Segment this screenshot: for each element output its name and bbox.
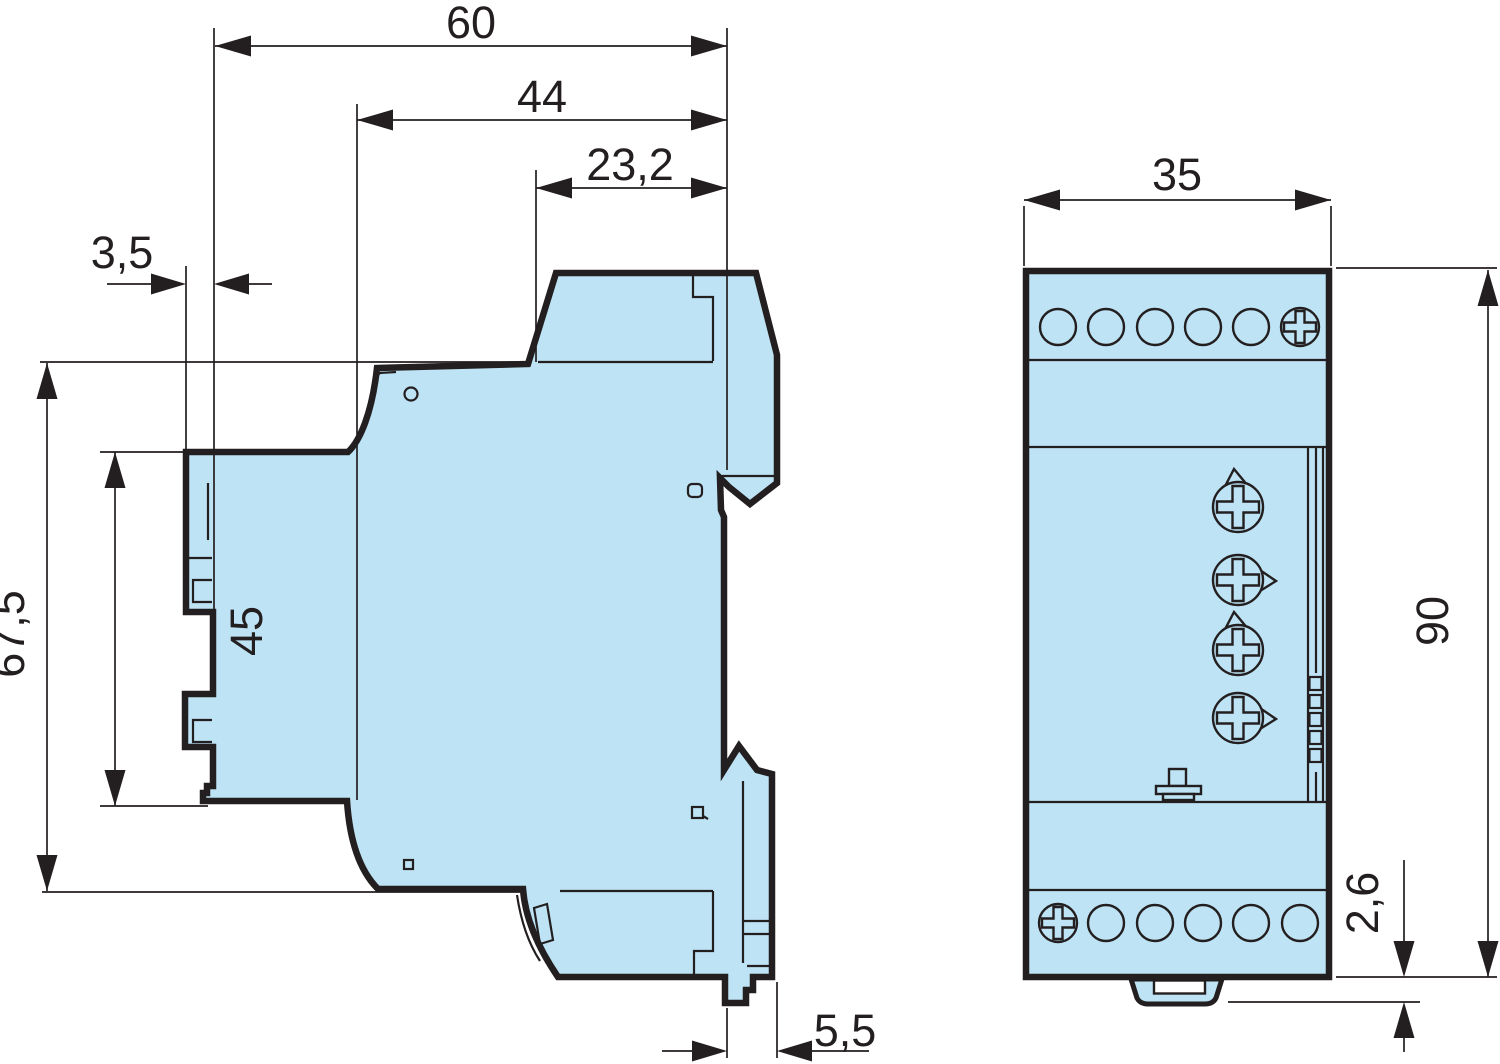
dim-clip-depth: 2,6: [1337, 860, 1415, 1052]
arrow-right-icon: [1295, 190, 1331, 211]
dim-label: 90: [1407, 596, 1458, 646]
arrow-left-icon: [215, 36, 251, 57]
dim-label: 44: [517, 71, 567, 122]
arrow-left-icon: [777, 1041, 812, 1062]
arrow-up-icon: [1478, 270, 1499, 306]
arrow-up-icon: [105, 452, 126, 488]
dim-total-height: 67,5: [0, 363, 58, 891]
dim-clip-offset: 5,5: [662, 1005, 876, 1062]
terminal-circle: [1137, 905, 1173, 941]
dim-front-height: 90: [1407, 270, 1499, 977]
engineering-drawing-page: 60 44 23,2 3,5 67,5: [0, 0, 1500, 1064]
arrow-left-icon: [357, 110, 393, 131]
arrow-left-icon: [536, 178, 572, 199]
side-view: [185, 273, 777, 1003]
dim-upper-width: 44: [357, 71, 727, 131]
dim-label: 60: [446, 0, 496, 48]
terminal-circle: [1233, 905, 1269, 941]
dim-label: 67,5: [0, 590, 34, 678]
terminal-circle: [1282, 905, 1318, 941]
terminal-circle: [1088, 309, 1124, 345]
dim-total-width: 60: [215, 0, 727, 57]
dim-label: 35: [1152, 149, 1202, 200]
dimension-drawing: 60 44 23,2 3,5 67,5: [0, 0, 1500, 1064]
arrow-left-icon: [1024, 190, 1060, 211]
arrow-right-icon: [691, 36, 727, 57]
arrow-up-icon: [37, 363, 58, 399]
arrow-right-icon: [692, 1041, 727, 1062]
phillips-screw-icon: [1039, 904, 1077, 942]
dim-front-width: 35: [1024, 149, 1331, 211]
arrow-up-icon: [1394, 1002, 1415, 1038]
dim-label: 2,6: [1337, 872, 1388, 935]
terminal-circle: [1137, 309, 1173, 345]
front-view: [1026, 271, 1329, 1004]
front-view-outline: [1026, 271, 1329, 977]
arrow-down-icon: [1394, 941, 1415, 977]
arrow-right-icon: [691, 110, 727, 131]
arrow-left-icon: [214, 274, 249, 295]
terminal-circle: [1185, 309, 1221, 345]
side-view-outline: [185, 273, 777, 1003]
terminal-circle: [1233, 309, 1269, 345]
dim-top-width: 23,2: [536, 139, 727, 199]
terminal-circle: [1040, 309, 1076, 345]
arrow-right-icon: [691, 178, 727, 199]
terminal-circle: [1185, 905, 1221, 941]
terminal-circle: [1088, 905, 1124, 941]
dim-label: 45: [221, 606, 272, 656]
arrow-right-icon: [151, 274, 186, 295]
dim-label: 3,5: [91, 227, 154, 278]
phillips-screw-icon: [1281, 308, 1319, 346]
din-clip-slot: [1154, 981, 1205, 994]
dim-label: 5,5: [814, 1005, 877, 1056]
dim-label: 23,2: [586, 139, 674, 190]
arrow-down-icon: [105, 770, 126, 806]
dim-mount-offset: 3,5: [91, 227, 272, 295]
arrow-down-icon: [1478, 941, 1499, 977]
arrow-down-icon: [37, 855, 58, 891]
